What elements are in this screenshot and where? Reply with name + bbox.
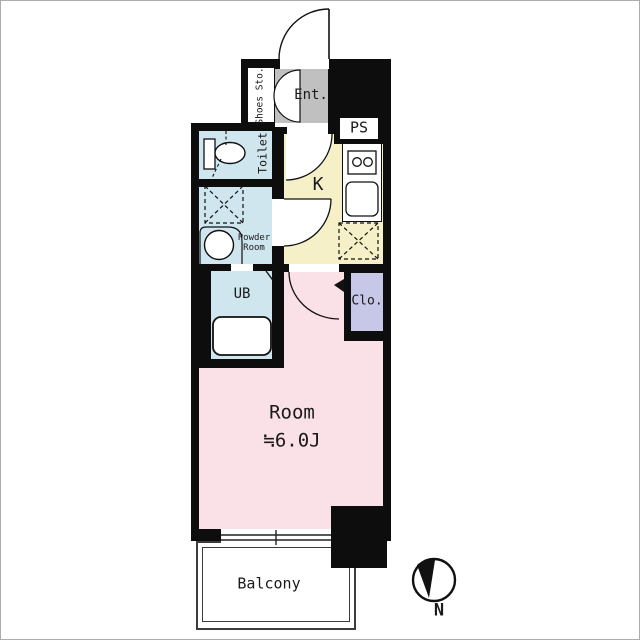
balcony-label: Balcony [237, 576, 300, 593]
entrance-door-gap [280, 59, 329, 69]
corner-pillar [331, 506, 387, 568]
toilet-label: Toilet [257, 132, 270, 174]
pipe-space-label: PS [350, 120, 368, 137]
floor-plan: Shoes Sto. Ent. PS K Toilet Powder Room … [0, 0, 640, 640]
room-door-gap [289, 264, 339, 272]
kitchen-counter [342, 143, 382, 222]
entrance-door-icon [279, 9, 329, 59]
unit-bath-room [211, 271, 272, 359]
room-label: Room [269, 402, 315, 423]
powder-door-gap [272, 199, 284, 246]
compass-north-label: N [434, 601, 444, 620]
room-area [199, 506, 331, 529]
closet-label: Clo. [351, 295, 382, 310]
bath-door-gap [231, 264, 253, 271]
shoes-storage-label: Shoes Sto. [256, 67, 267, 124]
compass-icon [413, 559, 455, 601]
entry-step-wall-stub [275, 127, 287, 134]
kitchen-label: K [313, 175, 324, 195]
room-area [284, 272, 344, 341]
unit-bath-label: UB [234, 287, 251, 303]
entrance-label: Ent. [294, 88, 328, 104]
room-size-label: ≒6.0J [263, 430, 320, 451]
powder-room-label: Powder Room [238, 233, 271, 253]
window-band [221, 529, 331, 545]
